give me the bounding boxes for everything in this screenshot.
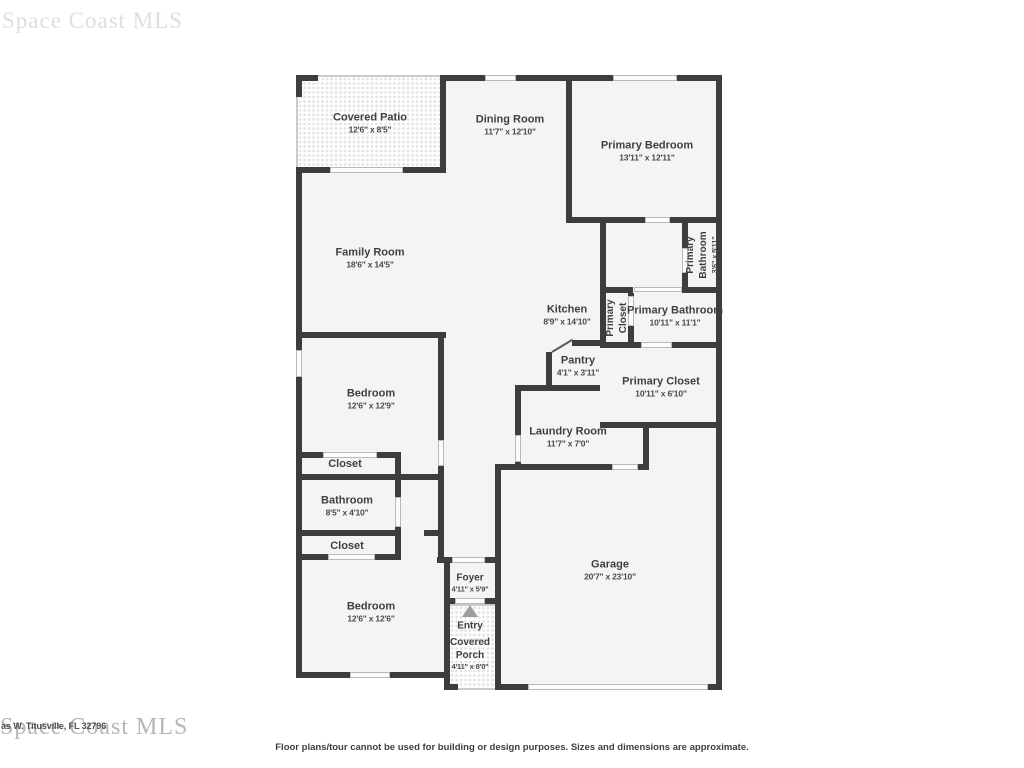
room-label-bedroom-2: Bedroom 12'6" x 12'9": [347, 386, 395, 411]
window: [613, 75, 677, 81]
wall-segment: [638, 464, 649, 470]
wall-segment: [672, 342, 722, 348]
wall-segment: [566, 81, 572, 223]
room-label-closet-1: Closet: [328, 457, 362, 471]
wall-segment: [438, 466, 444, 563]
wall-segment: [296, 332, 446, 338]
window: [350, 672, 390, 678]
wall-segment: [485, 557, 497, 563]
wall-segment: [296, 474, 444, 480]
room-label-pantry: Pantry 4'1" x 3'11": [557, 353, 599, 378]
room-label-garage: Garage 20'7" x 23'10": [584, 557, 636, 582]
sliding-door: [330, 167, 403, 173]
door-opening: [438, 440, 444, 466]
room-label-bedroom-3: Bedroom 12'6" x 12'6": [347, 599, 395, 624]
door-opening: [634, 287, 682, 292]
wall-segment: [296, 170, 302, 678]
door-opening: [452, 557, 485, 563]
room-label-dining-room: Dining Room 11'7" x 12'10": [476, 112, 544, 137]
room-label-entry: Entry: [457, 620, 483, 633]
room-label-primary-closet: Primary Closet 10'11" x 6'10": [622, 374, 700, 399]
floor-plan-page: Space Coast MLS: [0, 0, 1024, 768]
wall-segment: [670, 217, 722, 223]
wall-segment: [424, 530, 444, 536]
exterior-notch: [296, 678, 444, 690]
room-label-foyer: Foyer 4'11" x 5'9": [451, 572, 488, 595]
wall-segment: [296, 452, 323, 458]
wall-segment: [682, 287, 722, 293]
room-label-primary-bathroom-small: Primary Bathroom 3'6" x 5'11": [684, 224, 720, 286]
closet-door: [328, 554, 375, 560]
listing-address-fragment: as W. Titusville, FL 32796: [1, 721, 106, 731]
wall-segment: [495, 464, 612, 470]
wall-segment: [572, 340, 600, 346]
room-label-covered-patio: Covered Patio 12'6" x 8'5": [333, 110, 407, 135]
room-label-covered-porch: Covered Porch 4'11" x 8'0": [443, 636, 497, 672]
wall-segment: [515, 385, 600, 391]
wall-segment: [296, 554, 328, 560]
patio-post: [296, 75, 318, 81]
room-label-bathroom: Bathroom 8'5" x 4'10": [321, 493, 373, 518]
door-opening: [612, 464, 638, 470]
door-opening: [515, 435, 521, 462]
room-label-closet-2: Closet: [330, 539, 364, 553]
wall-segment: [600, 422, 722, 428]
watermark-top: Space Coast MLS: [2, 8, 183, 34]
room-label-primary-bedroom: Primary Bedroom 13'11" x 12'11": [601, 138, 693, 163]
room-label-family-room: Family Room 18'6" x 14'5": [335, 245, 404, 270]
wall-segment: [296, 167, 330, 173]
door-opening: [641, 342, 672, 348]
room-label-laundry-room: Laundry Room 11'7" x 7'0": [529, 424, 607, 449]
room-label-kitchen: Kitchen 8'9" x 14'10": [543, 302, 590, 327]
entry-arrow-icon: [462, 605, 478, 617]
wall-segment: [440, 75, 446, 173]
disclaimer-text: Floor plans/tour cannot be used for buil…: [0, 742, 1024, 753]
front-door: [455, 598, 485, 604]
wall-segment: [444, 598, 455, 604]
door-opening: [395, 497, 401, 527]
window: [485, 75, 516, 81]
wall-segment: [485, 598, 497, 604]
floor-plan: Covered Patio 12'6" x 8'5" Dining Room 1…: [296, 75, 722, 690]
room-label-primary-bathroom: Primary Bathroom 10'11" x 11'1": [627, 303, 723, 328]
wall-segment: [716, 75, 722, 690]
wall-segment: [438, 332, 444, 440]
window: [296, 350, 302, 377]
wall-segment: [296, 530, 401, 536]
wall-segment: [375, 554, 401, 560]
wall-segment: [708, 684, 722, 690]
wall-segment: [403, 167, 446, 173]
garage-door: [528, 684, 708, 690]
wall-segment: [515, 391, 521, 435]
door-opening: [645, 217, 670, 223]
